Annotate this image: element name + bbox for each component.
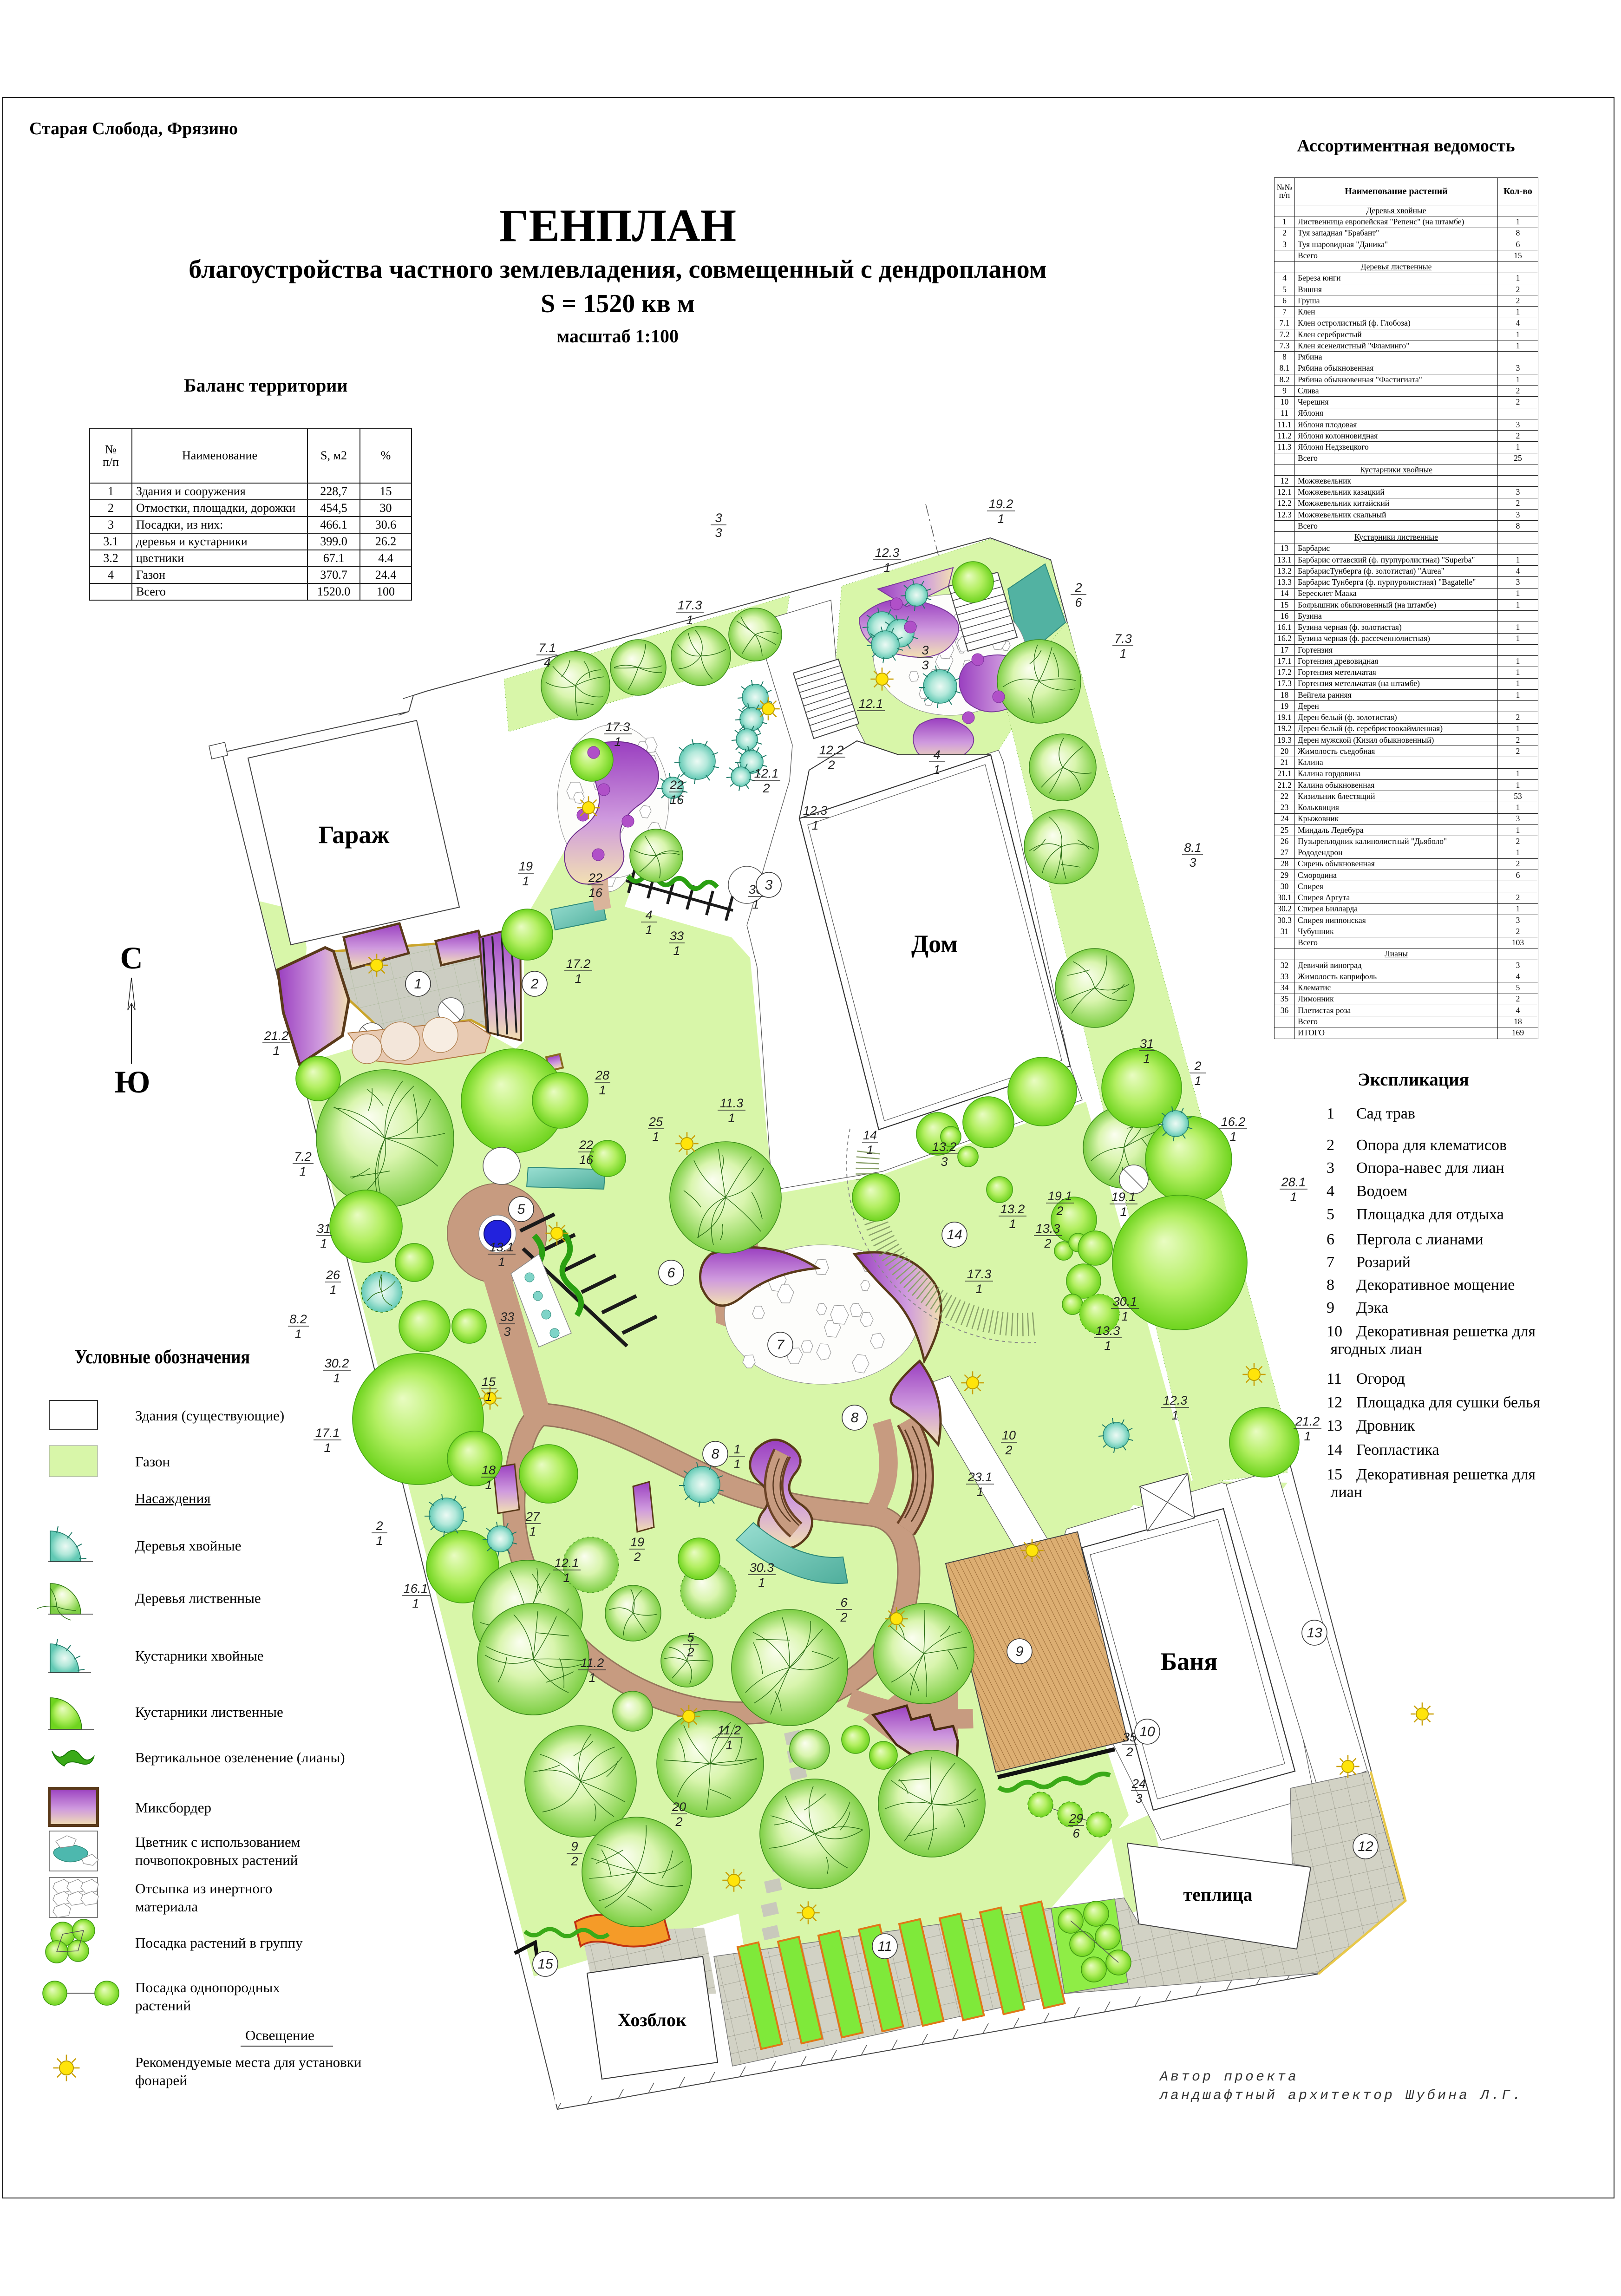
svg-text:Ю: Ю	[115, 1064, 150, 1099]
svg-text:С: С	[120, 940, 143, 975]
